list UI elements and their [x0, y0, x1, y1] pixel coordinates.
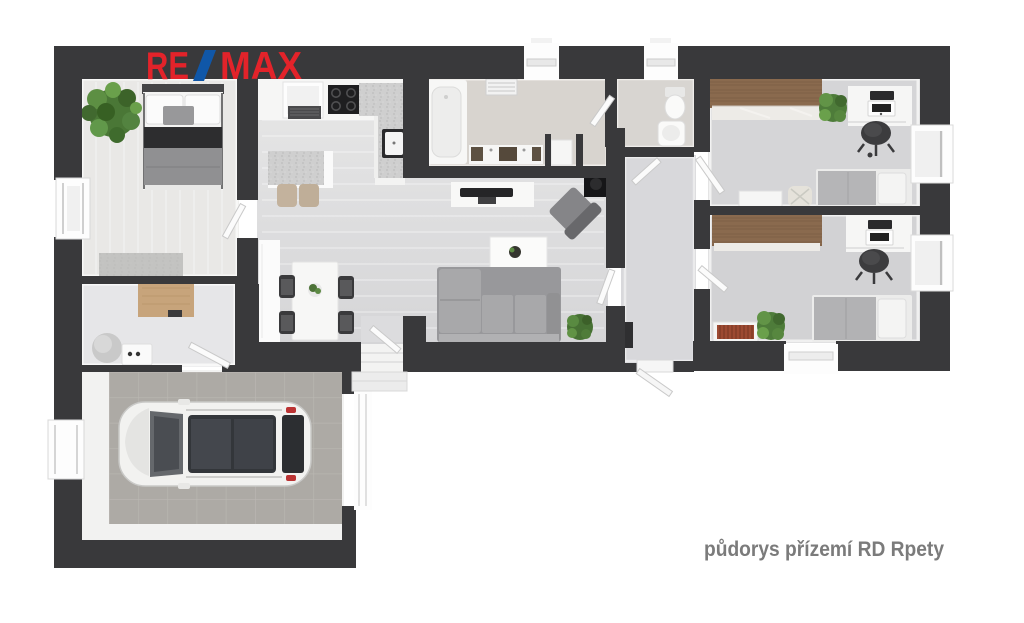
svg-text:MAX: MAX: [220, 45, 302, 88]
svg-text:půdorys přízemí RD Rpety: půdorys přízemí RD Rpety: [704, 538, 944, 561]
svg-text:RE: RE: [146, 45, 189, 88]
